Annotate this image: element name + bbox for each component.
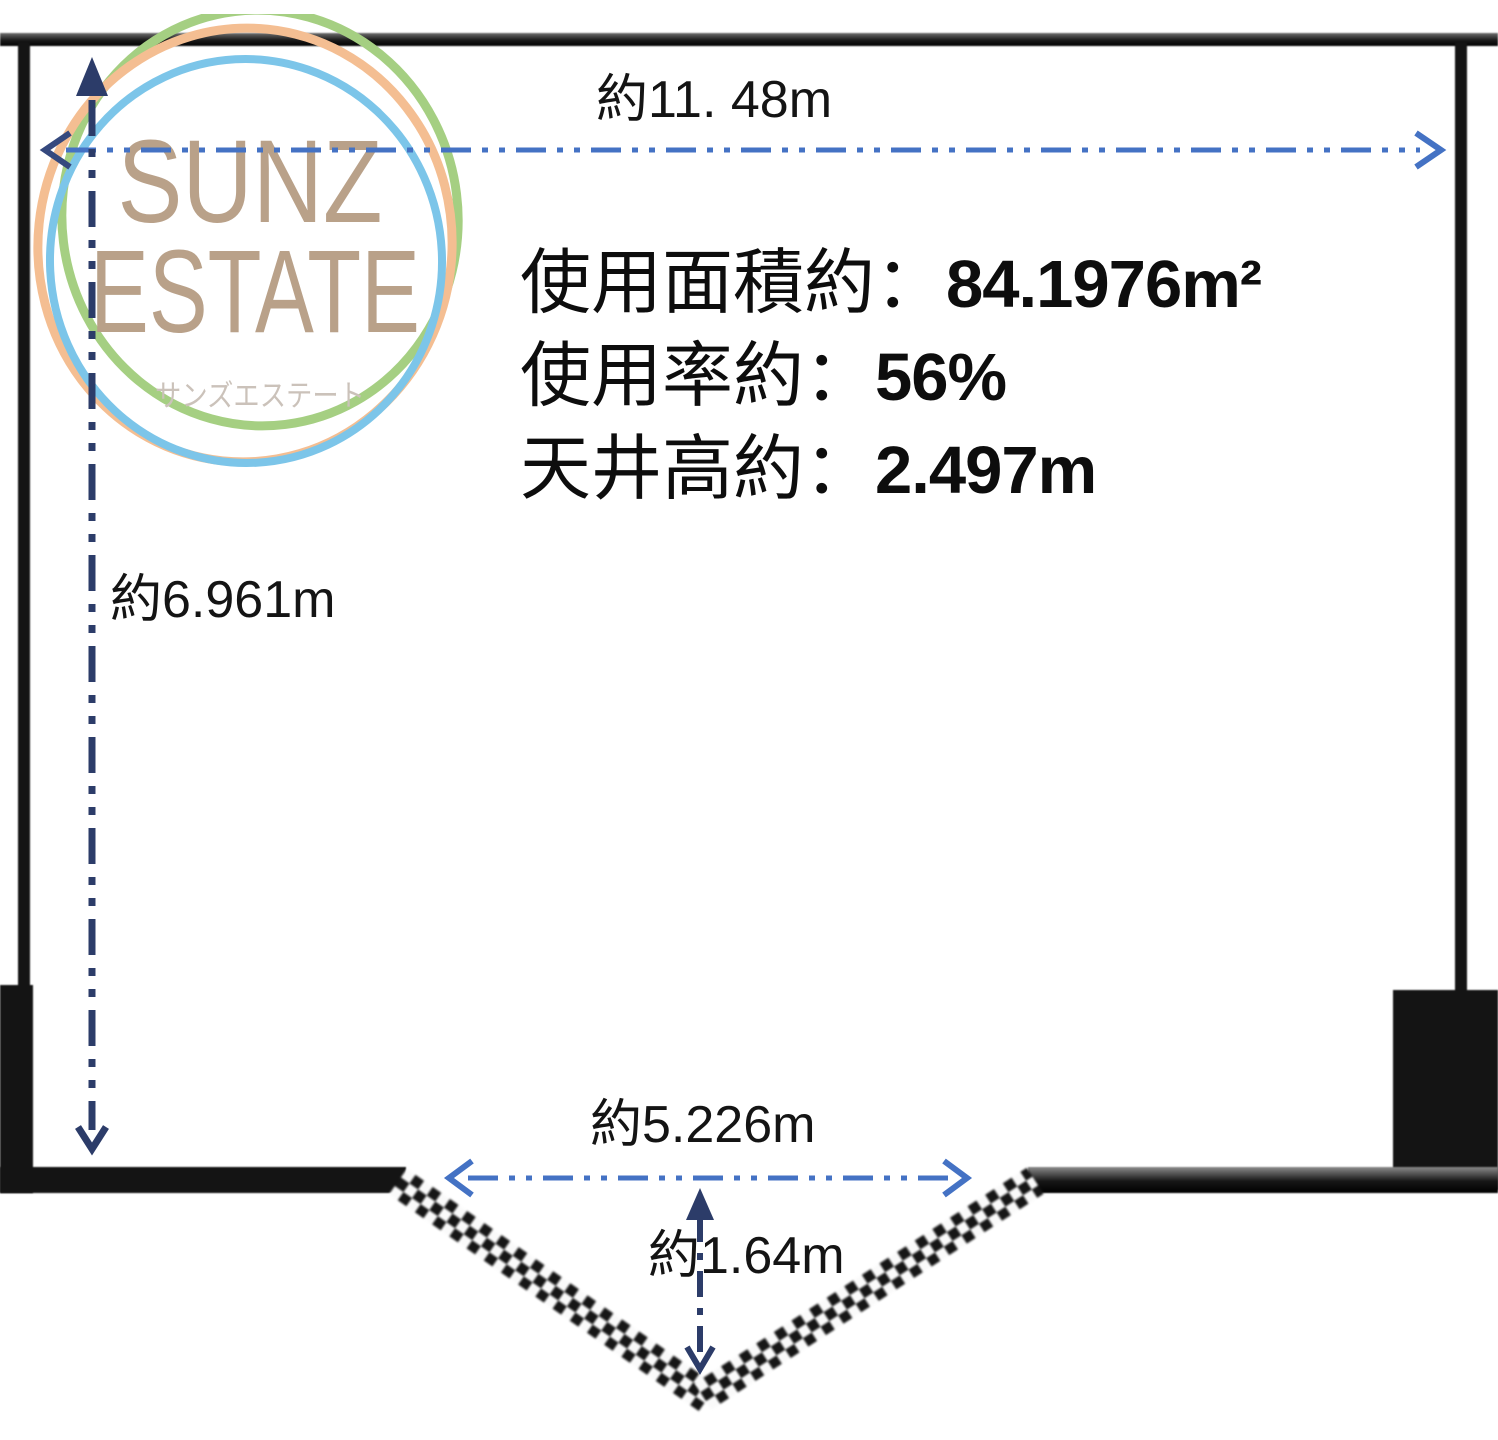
usage-rate-label: 使用率約： xyxy=(520,319,875,421)
property-info-block: 使用面積約： 84.1976m² 使用率約： 56% 天井高約： 2.497m xyxy=(520,226,1261,505)
dimension-line-bottom-opening xyxy=(449,1161,967,1195)
dimension-label-top-width: 約11. 48m xyxy=(596,72,832,129)
floor-plan-canvas: SUNZ ESTATE サンズエステート 約11. xyxy=(0,0,1498,1440)
dimension-label-bottom-opening: 約5.226m xyxy=(590,1097,815,1154)
arrowhead-up-icon xyxy=(686,1188,714,1220)
dimension-label-left-height: 約6.961m xyxy=(110,572,335,629)
floor-area-label: 使用面積約： xyxy=(520,226,946,328)
ceiling-height-label: 天井高約： xyxy=(520,412,875,514)
dimension-label-notch-depth: 約1.64m xyxy=(648,1228,845,1285)
arrowhead-up-icon xyxy=(76,57,108,96)
info-line-usage-rate: 使用率約： 56% xyxy=(520,319,1261,412)
ceiling-height-value: 2.497m xyxy=(875,432,1096,509)
info-line-ceiling-height: 天井高約： 2.497m xyxy=(520,412,1261,505)
dimension-lines-overlay xyxy=(0,0,1498,1440)
info-line-floor-area: 使用面積約： 84.1976m² xyxy=(520,226,1261,319)
dimension-line-left-height xyxy=(76,57,108,1149)
floor-area-value: 84.1976m² xyxy=(946,246,1261,323)
arrowhead-down-icon xyxy=(78,1127,106,1149)
usage-rate-value: 56% xyxy=(875,339,1006,416)
dimension-line-top-width xyxy=(45,133,1441,167)
